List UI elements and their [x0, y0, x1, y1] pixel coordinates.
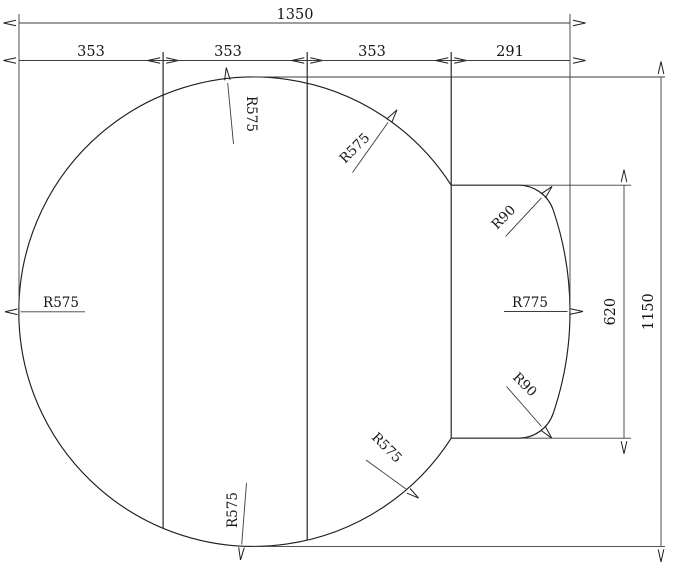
dim-label-overall-height: 1150: [641, 293, 657, 330]
radius-label-top: R575: [243, 96, 259, 132]
dim-label-segment-3: 353: [358, 44, 386, 60]
dim-label-segment-1: 353: [77, 44, 105, 60]
radius-label-corner-bottom: R90: [509, 370, 540, 401]
dim-label-segment-4: 291: [496, 44, 524, 60]
radius-label-left: R575: [43, 295, 79, 311]
dim-label-segment-2: 353: [214, 44, 242, 60]
radius-label-bulge: R775: [512, 295, 548, 311]
dimension-drawing: 1350 353 353 353 291 620 1150 R575 R575 …: [0, 0, 680, 570]
leader-radius-top: [228, 83, 234, 144]
radius-label-bottom: R575: [225, 492, 241, 528]
leader-radius-lower-right: [366, 460, 406, 489]
radius-label-lower-right: R575: [368, 430, 405, 467]
radius-label-corner-top: R90: [489, 202, 520, 233]
radius-label-upper-right: R575: [337, 130, 374, 167]
dim-label-tab-height: 620: [603, 298, 619, 326]
dim-label-overall-width: 1350: [277, 7, 314, 23]
leader-radius-bottom: [242, 483, 247, 545]
technical-drawing-canvas: 1350 353 353 353 291 620 1150 R575 R575 …: [0, 0, 680, 570]
